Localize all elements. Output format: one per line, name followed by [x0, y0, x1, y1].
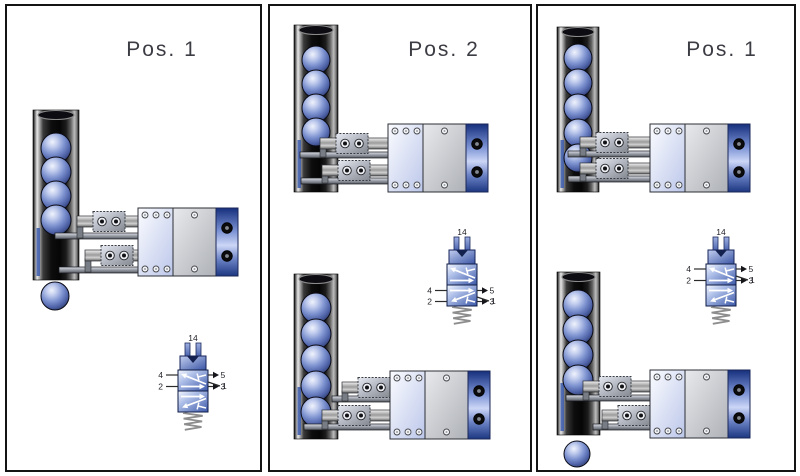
- pilot-stem: [713, 237, 718, 251]
- screw-head-center: [706, 130, 708, 132]
- screw-head-center: [444, 184, 446, 186]
- valve-port-label-4: 4: [158, 370, 163, 380]
- tube-opening: [562, 28, 594, 37]
- valve-port-label-1: 1: [491, 296, 496, 306]
- screw-head-center: [678, 430, 680, 432]
- screw-head-center: [405, 130, 407, 132]
- pilot-stem: [465, 237, 470, 251]
- cylinder-port-center: [737, 416, 741, 420]
- screw-head-center: [144, 214, 146, 216]
- panel-title: Pos. 1: [97, 38, 227, 62]
- panel-title: Pos. 1: [657, 38, 787, 62]
- panel-pos-1-left: 1442531 Pos. 1: [5, 4, 262, 472]
- screw-head-center: [667, 376, 669, 378]
- guide-block-hole-center: [114, 220, 118, 224]
- screw-head-center: [706, 376, 708, 378]
- panel-pos-1-right: 1442531 Pos. 1: [536, 4, 796, 472]
- screw-head-center: [446, 431, 448, 433]
- pneumatic-ball-dispenser-diagram: 1442531 Pos. 1 1442531 Pos. 2 1442531 Po…: [0, 0, 800, 476]
- screw-head-center: [706, 430, 708, 432]
- ball: [41, 205, 71, 235]
- guide-block-hole-center: [357, 142, 361, 146]
- valve-port-label-4: 4: [427, 286, 432, 296]
- screw-head-center: [418, 431, 420, 433]
- separator-blade-upper: [55, 233, 146, 239]
- ball-feeder-mechanism: [33, 110, 238, 310]
- guide-block-hole-center: [379, 386, 383, 390]
- screw-head-center: [656, 376, 658, 378]
- cylinder-port-center: [475, 142, 479, 146]
- separator-blade-lower: [59, 267, 146, 273]
- tube-inner-reflection: [298, 140, 302, 188]
- ball: [564, 69, 592, 97]
- screw-head-center: [155, 268, 157, 270]
- screw-head-center: [678, 184, 680, 186]
- screw-head-center: [656, 130, 658, 132]
- cylinder-end-cap: [728, 370, 750, 438]
- guide-block-hole-center: [625, 414, 629, 418]
- screw-head-center: [144, 268, 146, 270]
- valve-position-box-top: [178, 370, 208, 391]
- valve-port-label-2: 2: [158, 382, 163, 392]
- guide-block-hole-center: [365, 386, 369, 390]
- cylinder-end-cap: [216, 208, 238, 276]
- guide-block-hole-center: [617, 167, 621, 171]
- panel-pos-2-middle: 1442531 Pos. 2: [268, 4, 532, 472]
- screw-head-center: [446, 377, 448, 379]
- guide-block-hole-center: [639, 414, 643, 418]
- cylinder-port-center: [225, 226, 229, 230]
- screw-head-center: [416, 130, 418, 132]
- guide-block-hole-center: [359, 169, 363, 173]
- screw-head-center: [667, 430, 669, 432]
- screw-head-center: [444, 130, 446, 132]
- screw-head-center: [394, 130, 396, 132]
- valve-port-label-1: 1: [750, 275, 755, 285]
- pilot-stem: [185, 343, 190, 357]
- screw-head-center: [394, 184, 396, 186]
- cylinder-end-cap: [468, 371, 490, 439]
- tube-opening: [299, 275, 333, 284]
- valve-position-box-bottom: [706, 285, 736, 306]
- tube-opening: [38, 111, 74, 120]
- guide-block-hole-center: [345, 169, 349, 173]
- screw-head-center: [407, 431, 409, 433]
- valve-port-label-5: 5: [749, 264, 754, 274]
- valve-port-label-5: 5: [221, 370, 226, 380]
- valve-position-box-bottom: [178, 391, 208, 412]
- port-arrowhead: [482, 287, 488, 293]
- tube-opening: [299, 26, 333, 35]
- screw-head-center: [407, 377, 409, 379]
- cylinder-port-center: [475, 170, 479, 174]
- guide-block-hole-center: [620, 385, 624, 389]
- guide-block-hole-center: [122, 254, 126, 258]
- valve-return-spring: [711, 307, 731, 324]
- guide-block-hole-center: [606, 385, 610, 389]
- screw-head-center: [194, 214, 196, 216]
- cylinder-end-cap: [728, 124, 750, 192]
- tube-inner-reflection: [37, 228, 41, 276]
- panel-3-graphics: 1442531: [538, 6, 794, 470]
- valve-pilot-port-label: 14: [457, 227, 467, 237]
- valve-pilot-port-label: 14: [188, 333, 198, 343]
- valve-port-label-1: 1: [222, 381, 227, 391]
- guide-block-hole-center: [100, 220, 104, 224]
- screw-head-center: [706, 184, 708, 186]
- port-arrowhead: [213, 372, 219, 378]
- cylinder-port-center: [477, 417, 481, 421]
- screw-head-center: [656, 430, 658, 432]
- screw-head-center: [166, 214, 168, 216]
- panel-2-graphics: 1442531: [270, 6, 530, 470]
- tube-opening: [562, 273, 595, 282]
- valve-position-box-top: [447, 264, 477, 285]
- valve-return-spring: [452, 307, 472, 324]
- guide-block-hole-center: [603, 141, 607, 145]
- pilot-stem: [196, 343, 201, 357]
- valve-return-spring: [183, 413, 203, 430]
- ball: [564, 44, 592, 72]
- valve-port-label-2: 2: [427, 297, 432, 307]
- port-arrowhead: [741, 266, 747, 272]
- tube-inner-reflection: [298, 387, 302, 435]
- pneumatic-valve-symbol: 1442531: [158, 333, 227, 430]
- guide-block-hole-center: [108, 254, 112, 258]
- dispensed-ball: [564, 441, 590, 467]
- valve-position-box-bottom: [447, 285, 477, 306]
- guide-block-hole-center: [343, 142, 347, 146]
- valve-port-label-4: 4: [686, 264, 691, 274]
- guide-block-hole-center: [359, 414, 363, 418]
- tube-inner-reflection: [561, 383, 565, 431]
- screw-head-center: [667, 130, 669, 132]
- valve-port-label-5: 5: [490, 286, 495, 296]
- dispensed-ball: [41, 282, 69, 310]
- cylinder-port-center: [737, 388, 741, 392]
- screw-head-center: [194, 268, 196, 270]
- cylinder-end-cap: [466, 124, 488, 192]
- screw-head-center: [656, 184, 658, 186]
- ball: [564, 94, 592, 122]
- panel-title: Pos. 2: [379, 38, 509, 62]
- tube-inner-reflection: [561, 140, 565, 188]
- guide-block-hole-center: [345, 414, 349, 418]
- screw-head-center: [166, 268, 168, 270]
- cylinder-port-center: [737, 142, 741, 146]
- screw-head-center: [678, 376, 680, 378]
- valve-port-label-2: 2: [686, 276, 691, 286]
- screw-head-center: [155, 214, 157, 216]
- screw-head-center: [405, 184, 407, 186]
- valve-position-box-top: [706, 264, 736, 285]
- cylinder-port-center: [737, 170, 741, 174]
- screw-head-center: [396, 431, 398, 433]
- screw-head-center: [667, 184, 669, 186]
- screw-head-center: [678, 130, 680, 132]
- cylinder-port-center: [225, 254, 229, 258]
- pilot-stem: [724, 237, 729, 251]
- cylinder-port-center: [477, 389, 481, 393]
- pneumatic-valve-symbol: 1442531: [427, 227, 496, 324]
- screw-head-center: [418, 377, 420, 379]
- guide-block-hole-center: [617, 141, 621, 145]
- guide-block-hole-center: [603, 167, 607, 171]
- panel-1-graphics: 1442531: [7, 6, 260, 470]
- screw-head-center: [416, 184, 418, 186]
- screw-head-center: [396, 377, 398, 379]
- pneumatic-valve-symbol: 1442531: [686, 227, 755, 324]
- pilot-stem: [454, 237, 459, 251]
- valve-pilot-port-label: 14: [716, 227, 726, 237]
